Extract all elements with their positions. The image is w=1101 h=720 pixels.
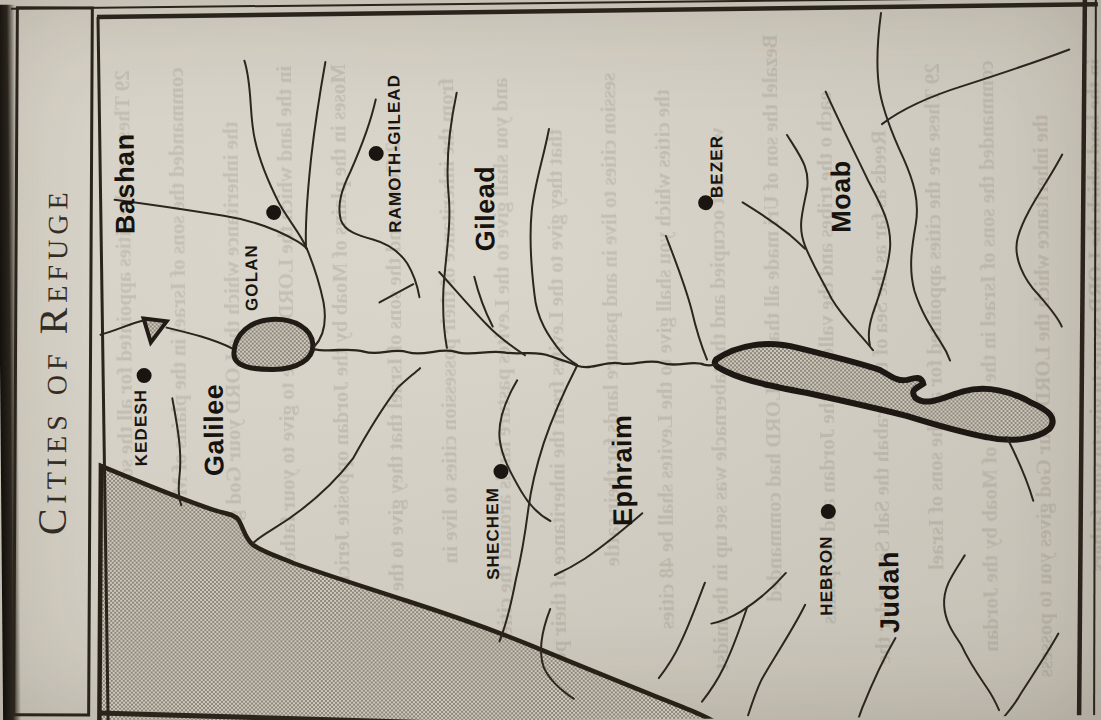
- map-title: Cities of Refuge: [29, 187, 78, 535]
- city-label-shechem: SHECHEM: [483, 487, 504, 580]
- region-label-bashan: Bashan: [110, 133, 142, 234]
- region-label-gilead: Gilead: [470, 166, 502, 252]
- map-border-right-inner: [1073, 0, 1091, 715]
- region-label-moab: Moab: [826, 160, 858, 233]
- dead-sea: [715, 342, 1053, 443]
- city-label-kedesh: KEDESH: [131, 389, 152, 467]
- city-dot-shechem: [493, 464, 508, 479]
- map-title-box: Cities of Refuge: [12, 6, 94, 716]
- city-label-bezer: BEZER: [707, 135, 728, 198]
- city-dot-kedesh: [137, 368, 152, 383]
- sea-of-galilee: [234, 319, 314, 370]
- city-dot-ramoth-gilead: [369, 146, 384, 161]
- city-label-golan: GOLAN: [242, 244, 263, 311]
- lake-huleh: [144, 318, 167, 342]
- city-label-ramoth-gilead: RAMOTH-GILEAD: [384, 74, 405, 233]
- region-label-galilee: Galilee: [199, 384, 231, 476]
- page-photo: 29 These are the cities appointed for al…: [0, 0, 1101, 720]
- map-border-right-outer: [1088, 0, 1101, 715]
- map-canvas: [0, 0, 1101, 720]
- region-label-judah: Judah: [874, 551, 906, 633]
- city-dot-hebron: [821, 504, 836, 519]
- city-label-hebron: HEBRON: [817, 535, 838, 615]
- region-label-ephraim: Ephraim: [607, 414, 639, 526]
- city-dot-golan: [266, 205, 281, 220]
